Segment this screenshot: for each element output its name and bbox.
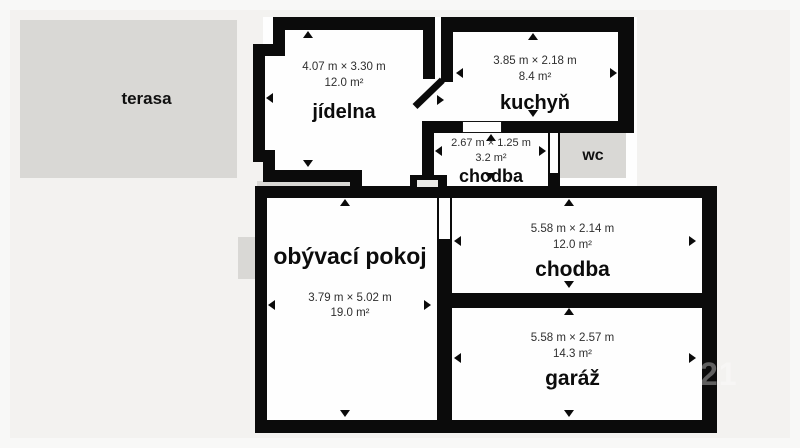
wall-segment: [273, 17, 435, 30]
room-dimensions: 4.07 m × 3.30 m: [274, 60, 414, 76]
room-area: 3.2 m²: [432, 151, 550, 166]
window-kitchen: [462, 121, 502, 133]
wall-segment: [422, 121, 634, 133]
measure-arrow-right: [437, 95, 444, 105]
wall-segment: [441, 17, 453, 82]
room-name: kuchyň: [455, 91, 615, 115]
wall-segment: [702, 186, 717, 433]
wall-segment: [253, 44, 265, 162]
wall-segment: [618, 17, 634, 133]
room-name: garáž: [455, 366, 690, 391]
floor-plan: 4.07 m × 3.30 m 12.0 m² jídelna 3.85 m ×…: [0, 0, 800, 448]
wall-segment: [255, 186, 267, 433]
exterior-step: [238, 237, 255, 279]
room-area: 12.0 m²: [455, 238, 690, 254]
room-dimensions: 2.67 m × 1.25 m: [432, 136, 550, 151]
measure-arrow-down: [564, 410, 574, 417]
room-area: 19.0 m²: [267, 306, 433, 322]
measure-arrow-up: [340, 199, 350, 206]
measure-arrow-up: [564, 199, 574, 206]
wall-segment: [255, 420, 717, 433]
room-name: obývací pokoj: [267, 243, 433, 271]
room-area: 14.3 m²: [455, 347, 690, 363]
measure-arrow-left: [266, 93, 273, 103]
room-dimensions: 3.79 m × 5.02 m: [267, 291, 433, 307]
watermark: 21: [700, 356, 738, 393]
door-opening-living-room: [439, 198, 450, 239]
room-name: jídelna: [274, 100, 414, 124]
wall-segment: [437, 293, 717, 308]
room-garaz: 5.58 m × 2.57 m 14.3 m² garáž: [455, 331, 690, 391]
room-jidelna: 4.07 m × 3.30 m 12.0 m² jídelna: [274, 60, 414, 124]
room-dimensions: 3.85 m × 2.18 m: [455, 54, 615, 70]
measure-arrow-up: [564, 308, 574, 315]
measure-arrow-down: [340, 410, 350, 417]
room-obyvaci-pokoj: obývací pokoj 3.79 m × 5.02 m 19.0 m²: [267, 243, 433, 322]
measure-arrow-right: [689, 353, 696, 363]
room-kuchyn: 3.85 m × 2.18 m 8.4 m² kuchyň: [455, 54, 615, 115]
measure-arrow-up: [528, 33, 538, 40]
wall-segment: [441, 17, 634, 32]
wall-segment: [263, 170, 362, 182]
room-chodba-mala: 2.67 m × 1.25 m 3.2 m² chodba: [432, 136, 550, 187]
room-area: 12.0 m²: [274, 76, 414, 92]
measure-arrow-right: [689, 236, 696, 246]
room-dimensions: 5.58 m × 2.14 m: [455, 222, 690, 238]
wall-segment: [255, 186, 717, 198]
wc-label: wc: [560, 133, 626, 178]
room-area: 8.4 m²: [455, 70, 615, 86]
measure-arrow-down: [303, 160, 313, 167]
room-dimensions: 5.58 m × 2.57 m: [455, 331, 690, 347]
terrace-label: terasa: [20, 20, 237, 178]
room-chodba: 5.58 m × 2.14 m 12.0 m² chodba: [455, 222, 690, 282]
measure-arrow-up: [303, 31, 313, 38]
door-opening-wc: [550, 133, 558, 173]
wall-segment: [423, 17, 435, 79]
room-name: chodba: [455, 257, 690, 282]
room-name: chodba: [432, 166, 550, 188]
